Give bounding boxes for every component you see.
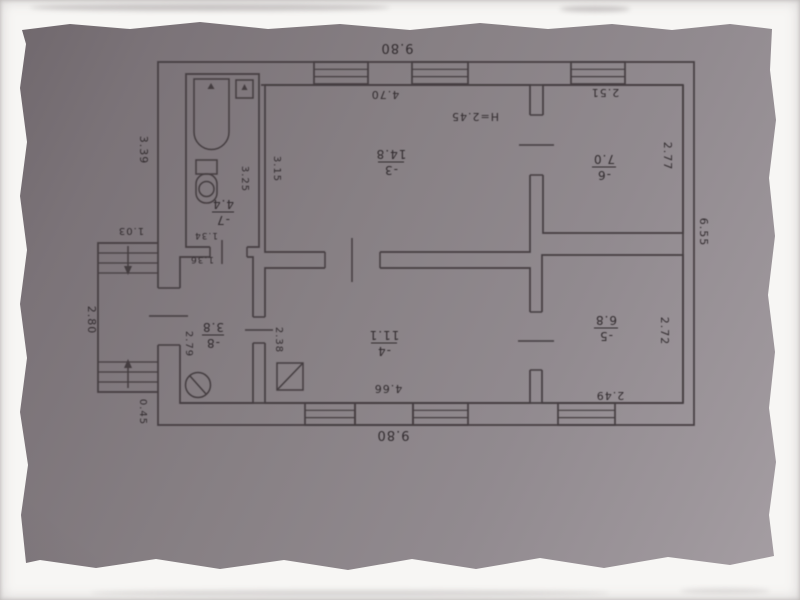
window	[314, 62, 368, 84]
svg-text:7.0: 7.0	[593, 152, 615, 166]
building-outline	[158, 62, 694, 425]
room-3-label: -3 14.8	[376, 147, 407, 177]
room-6-depth-label: 2.77	[661, 142, 674, 171]
border-texture	[90, 590, 610, 596]
window	[305, 403, 355, 425]
door-opening	[245, 317, 273, 343]
wall-panel	[355, 403, 413, 425]
svg-text:4.4: 4.4	[212, 197, 234, 211]
svg-text:-8: -8	[206, 336, 220, 350]
border-texture	[30, 4, 390, 11]
stove-icon	[277, 363, 303, 390]
porch-step-label: 0.45	[137, 399, 148, 425]
stairs-up-arrow-icon	[124, 359, 132, 388]
sink-icon	[236, 80, 253, 98]
svg-text:-4: -4	[377, 344, 391, 358]
room-7-depth-label: 3.25	[239, 166, 250, 192]
ceiling-height-label: H=2.45	[451, 110, 499, 123]
porch-depth-label: 2.80	[85, 306, 98, 335]
window	[571, 62, 625, 84]
room-5-label: -5 6.8	[594, 313, 618, 343]
svg-text:6.8: 6.8	[595, 313, 617, 327]
svg-text:-5: -5	[599, 329, 613, 343]
window	[412, 62, 468, 84]
dimension-label-top: 9.80	[381, 40, 414, 55]
room-6-width-label: 2.51	[591, 86, 620, 99]
svg-text:3.8: 3.8	[202, 320, 224, 334]
floorplan-sheet: 9.80 9.80 6.55 3.39 H=2.45 1.03 2.80 0.4…	[0, 0, 800, 600]
room-5-width-label: 2.49	[596, 389, 625, 402]
room-7-label: -7 4.4	[212, 197, 234, 227]
room-6-label: -6 7.0	[592, 152, 616, 182]
dimension-label-left: 3.39	[137, 136, 150, 165]
room-8-depth-label: 2.79	[183, 331, 194, 357]
room-8-width-label: 1.36	[190, 254, 214, 264]
room-8-label: -8 3.8	[202, 320, 224, 350]
toilet-icon	[196, 160, 217, 203]
svg-text:-3: -3	[384, 163, 398, 177]
door-opening	[518, 312, 554, 370]
svg-text:-7: -7	[216, 213, 230, 227]
room-7-width-label: 1.34	[194, 230, 218, 240]
floorplan-drawing: 9.80 9.80 6.55 3.39 H=2.45 1.03 2.80 0.4…	[0, 0, 800, 600]
porch-width-label: 1.03	[118, 225, 144, 236]
svg-text:14.8: 14.8	[376, 147, 407, 161]
room-4-depth-label: 2.38	[273, 327, 284, 353]
photo-frame: 9.80 9.80 6.55 3.39 H=2.45 1.03 2.80 0.4…	[0, 0, 800, 600]
window	[413, 403, 468, 425]
dimension-label-bottom: 9.80	[377, 427, 410, 442]
boiler-icon	[186, 373, 211, 398]
room-4-width-label: 4.66	[374, 382, 403, 395]
room-3-depth-label: 3.15	[271, 156, 282, 182]
svg-text:11.1: 11.1	[369, 328, 400, 342]
stairs-down-arrow-icon	[124, 246, 132, 275]
svg-text:-6: -6	[597, 168, 611, 182]
room-4-label: -4 11.1	[369, 328, 400, 358]
door-opening	[325, 238, 380, 282]
room-3-width-label: 4.70	[371, 88, 400, 101]
window	[558, 403, 615, 425]
border-texture	[560, 6, 630, 12]
room-5-depth-label: 2.72	[658, 317, 671, 346]
border-texture	[680, 588, 770, 594]
door-opening	[210, 240, 247, 264]
door-opening	[519, 115, 554, 175]
dimension-label-right: 6.55	[697, 218, 710, 247]
bathtub-icon	[194, 79, 229, 150]
door-opening	[149, 288, 188, 345]
